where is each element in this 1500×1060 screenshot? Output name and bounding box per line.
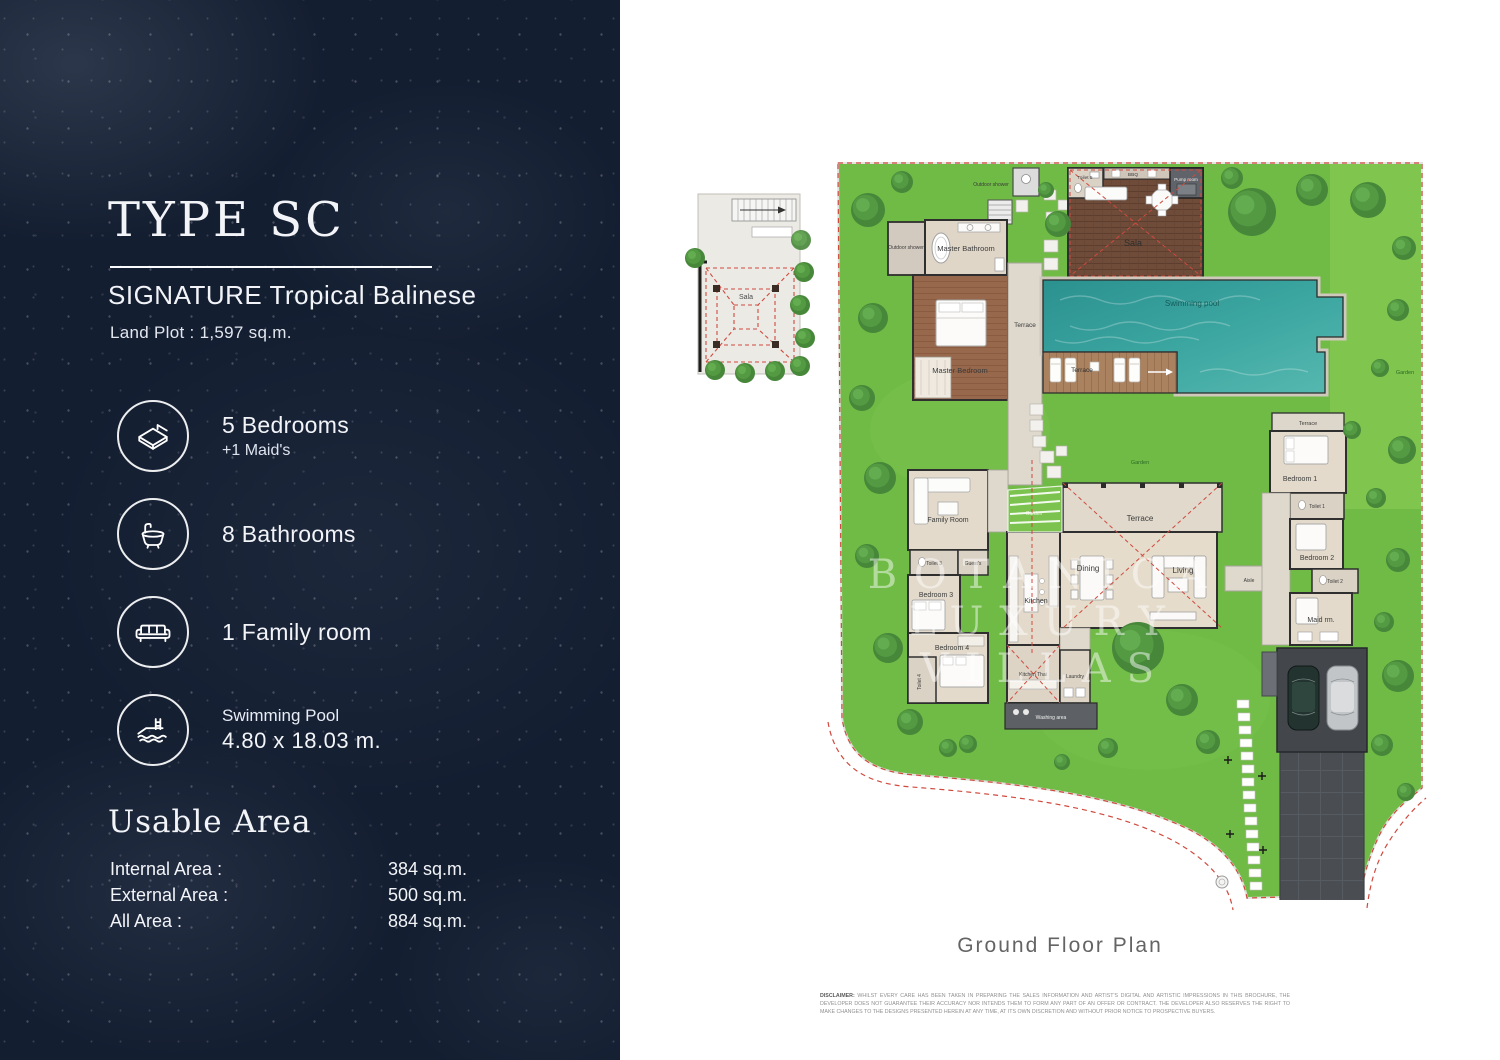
label-family-room: Family Room [927, 517, 968, 524]
label-kitchen-thai: Kitchen Thai [1019, 672, 1047, 678]
area-row-external: External Area : 500 sq.m. [110, 882, 548, 908]
car-dark [1288, 666, 1319, 730]
label-bedroom4: Bedroom 4 [935, 645, 969, 652]
upper-floor-inset [685, 194, 815, 383]
label-bedroom3: Bedroom 3 [919, 592, 953, 599]
feature-familyroom-text: 1 Family room [222, 619, 372, 646]
label-sala-upper: Sala [739, 294, 753, 301]
label-toilet4: Toilet 4 [917, 674, 923, 690]
area-row-internal: Internal Area : 384 sq.m. [110, 856, 548, 882]
label-pump-room: Pump room [1174, 177, 1198, 182]
area-value: 500 sq.m. [388, 882, 548, 908]
disclaimer-text: WHILST EVERY CARE HAS BEEN TAKEN IN PREP… [820, 993, 1290, 1015]
feature-bedrooms-text: 5 Bedrooms +1 Maid's [222, 412, 349, 460]
feature-bedrooms-sub: +1 Maid's [222, 442, 349, 460]
pool-terrace [1043, 352, 1177, 393]
trellis-court [1008, 486, 1062, 532]
label-master-bathroom: Master Bathroom [937, 244, 995, 253]
feature-list: 5 Bedrooms +1 Maid's 8 Bathrooms [117, 400, 381, 766]
label-terrace-master: Terrace [1014, 322, 1036, 329]
dining-set [1071, 556, 1113, 600]
area-row-all: All Area : 884 sq.m. [110, 908, 548, 934]
feature-bathrooms-main: 8 Bathrooms [222, 521, 356, 548]
label-terrace-wing: Terrace [1299, 421, 1317, 427]
ground-floor-plan: Outdoor shower Master Bathroom Master Be… [620, 0, 1500, 1060]
label-garden-right: Garden [1396, 370, 1414, 376]
label-toilet5: Toilet 5 [1077, 175, 1093, 181]
walkway-terrace [1008, 263, 1042, 485]
bed-icon [117, 400, 189, 472]
area-label: All Area : [110, 908, 388, 934]
label-outdoor-shower-left: Outdoor shower [888, 245, 924, 251]
label-laundry: Laundry [1066, 674, 1085, 680]
label-aisle: Aisle [1244, 578, 1255, 584]
feature-pool: Swimming Pool 4.80 x 18.03 m. [117, 694, 381, 766]
car-silver [1327, 666, 1358, 730]
label-guests: Guest's [965, 561, 982, 567]
bathtub-icon [117, 498, 189, 570]
label-washing-area: Washing area [1036, 715, 1067, 721]
feature-bathrooms-text: 8 Bathrooms [222, 521, 356, 548]
plan-area: Outdoor shower Master Bathroom Master Be… [620, 0, 1500, 1060]
label-toilet3: Toilet 3 [926, 561, 942, 567]
label-bedroom1: Bedroom 1 [1283, 476, 1317, 483]
disclaimer: DISCLAIMER: WHILST EVERY CARE HAS BEEN T… [820, 992, 1290, 1017]
sala-deck [1068, 168, 1203, 278]
feature-pool-small: Swimming Pool [222, 706, 381, 726]
feature-pool-text: Swimming Pool 4.80 x 18.03 m. [222, 706, 381, 754]
title-divider [110, 266, 432, 268]
subtitle: SIGNATURE Tropical Balinese [108, 280, 476, 311]
area-label: External Area : [110, 882, 388, 908]
disclaimer-label: DISCLAIMER: [820, 993, 855, 999]
usable-area-heading: Usable Area [108, 804, 312, 840]
label-toilet1: Toilet 1 [1309, 504, 1325, 510]
info-panel: TYPE SC SIGNATURE Tropical Balinese Land… [0, 0, 620, 1060]
label-living: Living [1173, 566, 1194, 575]
label-terrace-main: Terrace [1127, 514, 1154, 523]
feature-familyroom: 1 Family room [117, 596, 381, 668]
feature-bedrooms: 5 Bedrooms +1 Maid's [117, 400, 381, 472]
feature-pool-size: 4.80 x 18.03 m. [222, 728, 381, 754]
label-toilet2: Toilet 2 [1327, 579, 1343, 585]
main-terrace [1063, 483, 1222, 532]
label-bedroom2: Bedroom 2 [1300, 555, 1334, 562]
label-master-bedroom: Master Bedroom [932, 366, 987, 375]
label-bbq: BBQ [1128, 172, 1138, 178]
label-outdoor-shower-top: Outdoor shower [973, 182, 1009, 188]
area-value: 384 sq.m. [388, 856, 548, 882]
label-kitchen: Kitchen [1024, 598, 1047, 605]
area-label: Internal Area : [110, 856, 388, 882]
label-sala: Sala [1124, 238, 1142, 248]
usable-area-table: Internal Area : 384 sq.m. External Area … [110, 856, 548, 934]
label-maid: Maid rm. [1307, 617, 1334, 624]
feature-bathrooms: 8 Bathrooms [117, 498, 381, 570]
land-plot: Land Plot : 1,597 sq.m. [110, 323, 292, 343]
label-garden-center: Garden [1131, 460, 1149, 466]
label-dining: Dining [1077, 564, 1100, 573]
pool-icon [117, 694, 189, 766]
sofa-icon [117, 596, 189, 668]
label-garden-court: Garden [1026, 511, 1043, 517]
brochure-page: TYPE SC SIGNATURE Tropical Balinese Land… [0, 0, 1500, 1060]
label-swimming-pool: Swimming pool [1165, 299, 1219, 308]
plan-caption: Ground Floor Plan [900, 934, 1220, 958]
page-title: TYPE SC [108, 192, 345, 248]
feature-bedrooms-main: 5 Bedrooms [222, 412, 349, 439]
right-wing [1262, 413, 1358, 645]
label-terrace-pool: Terrace [1071, 367, 1093, 374]
area-value: 884 sq.m. [388, 908, 548, 934]
feature-familyroom-main: 1 Family room [222, 619, 372, 646]
